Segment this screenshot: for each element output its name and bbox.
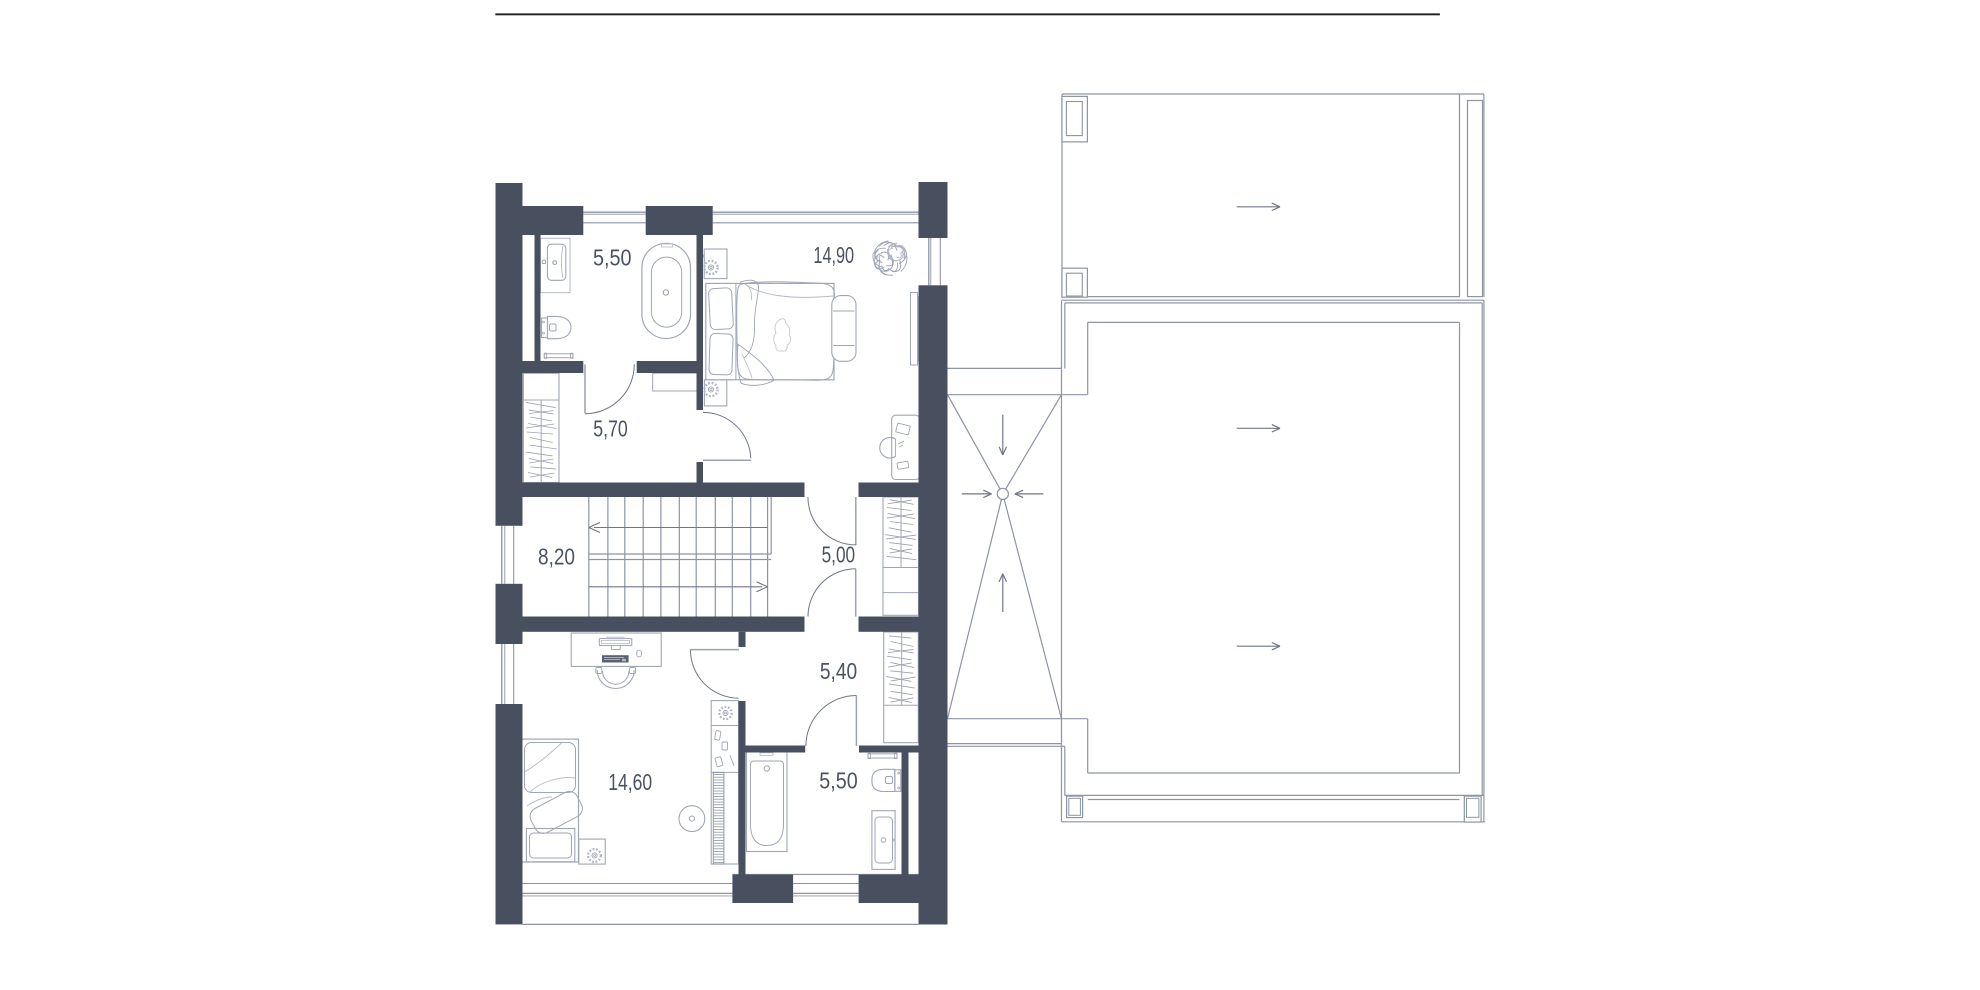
svg-text:5,40: 5,40 xyxy=(820,658,857,684)
svg-text:5,00: 5,00 xyxy=(822,542,856,568)
svg-text:5,50: 5,50 xyxy=(593,245,632,271)
svg-text:5,70: 5,70 xyxy=(593,416,628,442)
svg-text:14,60: 14,60 xyxy=(608,769,652,795)
svg-text:8,20: 8,20 xyxy=(538,544,575,570)
svg-text:14,90: 14,90 xyxy=(813,242,854,268)
svg-text:5,50: 5,50 xyxy=(819,768,857,794)
